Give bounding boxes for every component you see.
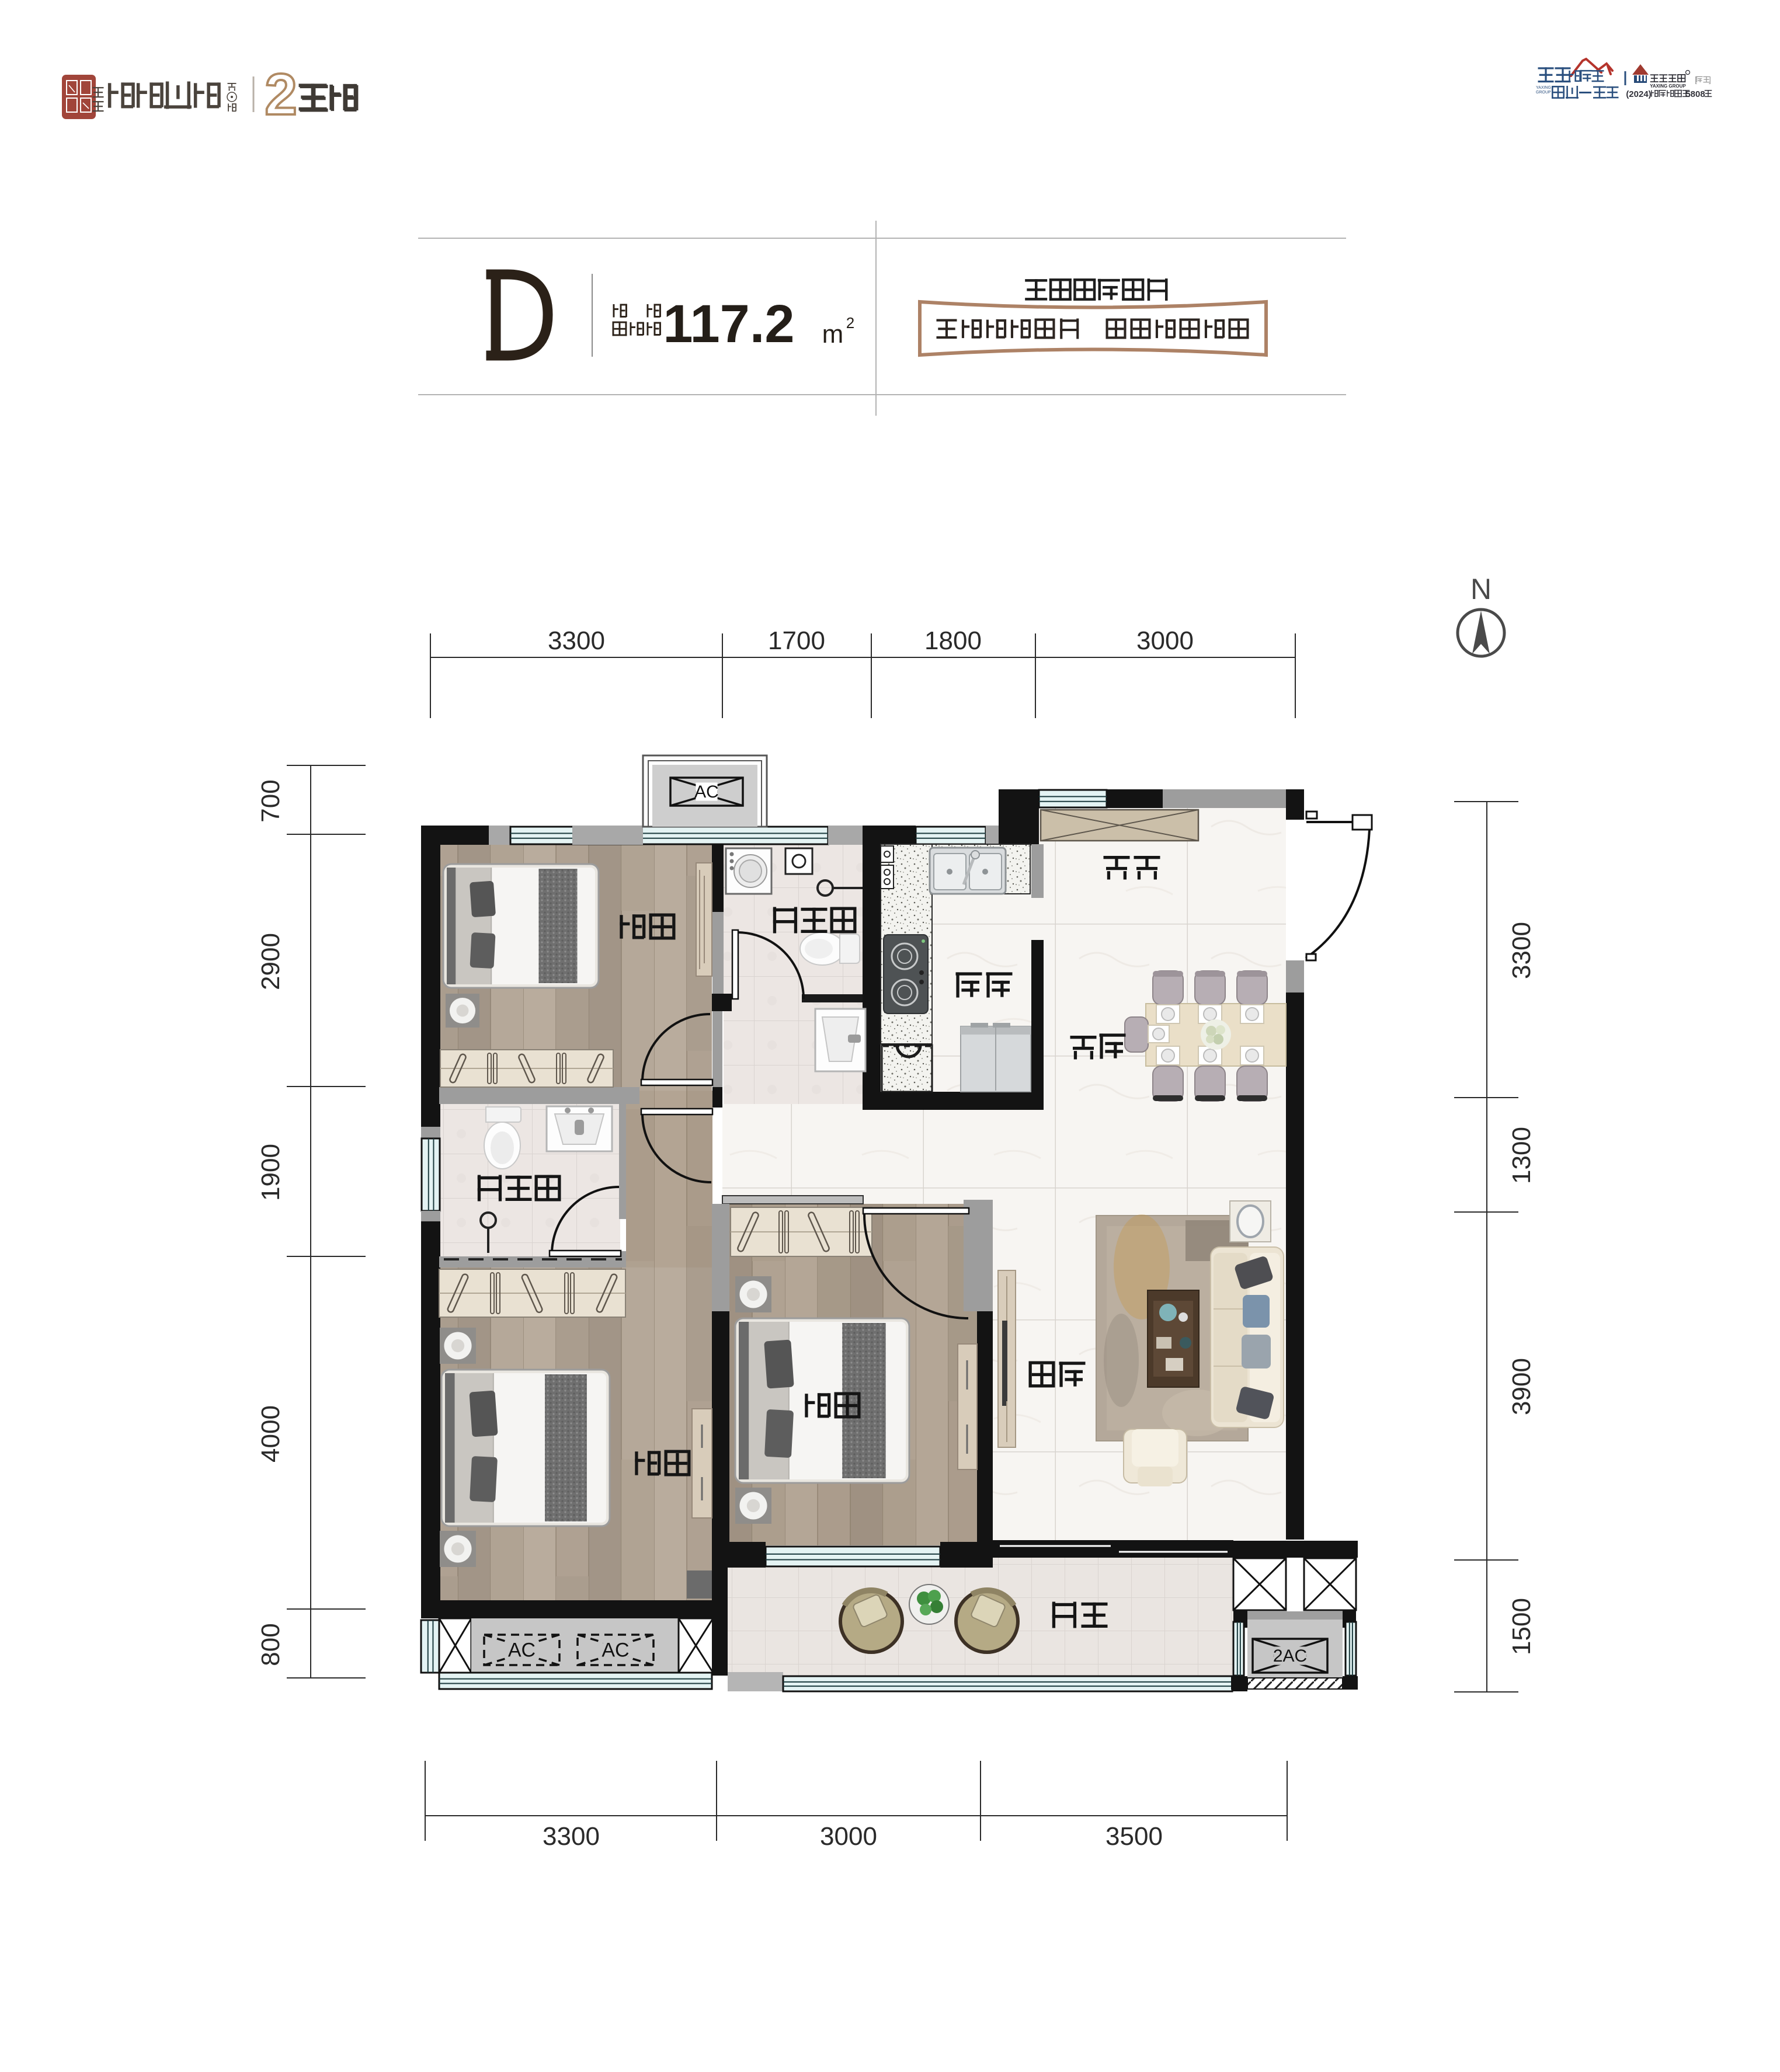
svg-text:3900: 3900 (1507, 1358, 1536, 1415)
svg-text:800: 800 (256, 1623, 285, 1666)
svg-text:117.2: 117.2 (663, 294, 794, 354)
svg-text:1900: 1900 (256, 1144, 285, 1201)
svg-text:AC: AC (694, 782, 719, 802)
svg-text:1700: 1700 (768, 626, 825, 655)
svg-text:3000: 3000 (820, 1822, 877, 1851)
svg-text:AC: AC (602, 1639, 629, 1662)
svg-text:2900: 2900 (256, 933, 285, 990)
svg-text:1800: 1800 (924, 626, 982, 655)
svg-text:N: N (1470, 573, 1492, 605)
svg-text:(2024): (2024) (1626, 89, 1651, 99)
svg-text:4000: 4000 (256, 1405, 285, 1462)
svg-text:GROUP: GROUP (1536, 90, 1551, 95)
svg-text:AC: AC (508, 1639, 536, 1662)
svg-text:]: ] (1709, 75, 1711, 84)
svg-text:1500: 1500 (1507, 1598, 1536, 1655)
svg-text:3300: 3300 (1507, 922, 1536, 979)
svg-text:3300: 3300 (548, 626, 605, 655)
svg-text:2AC: 2AC (1273, 1646, 1307, 1666)
svg-text:2: 2 (265, 62, 297, 127)
svg-text:YAXING: YAXING (1536, 86, 1551, 90)
svg-text:2: 2 (846, 314, 854, 332)
svg-text:3500: 3500 (1105, 1822, 1163, 1851)
svg-text:m: m (822, 320, 844, 349)
svg-text:1300: 1300 (1507, 1127, 1536, 1184)
svg-text:3300: 3300 (543, 1822, 600, 1851)
svg-text:5808: 5808 (1685, 89, 1705, 99)
svg-text:3000: 3000 (1136, 626, 1194, 655)
svg-text:700: 700 (256, 779, 285, 822)
svg-text:YAXING GROUP: YAXING GROUP (1650, 83, 1686, 89)
